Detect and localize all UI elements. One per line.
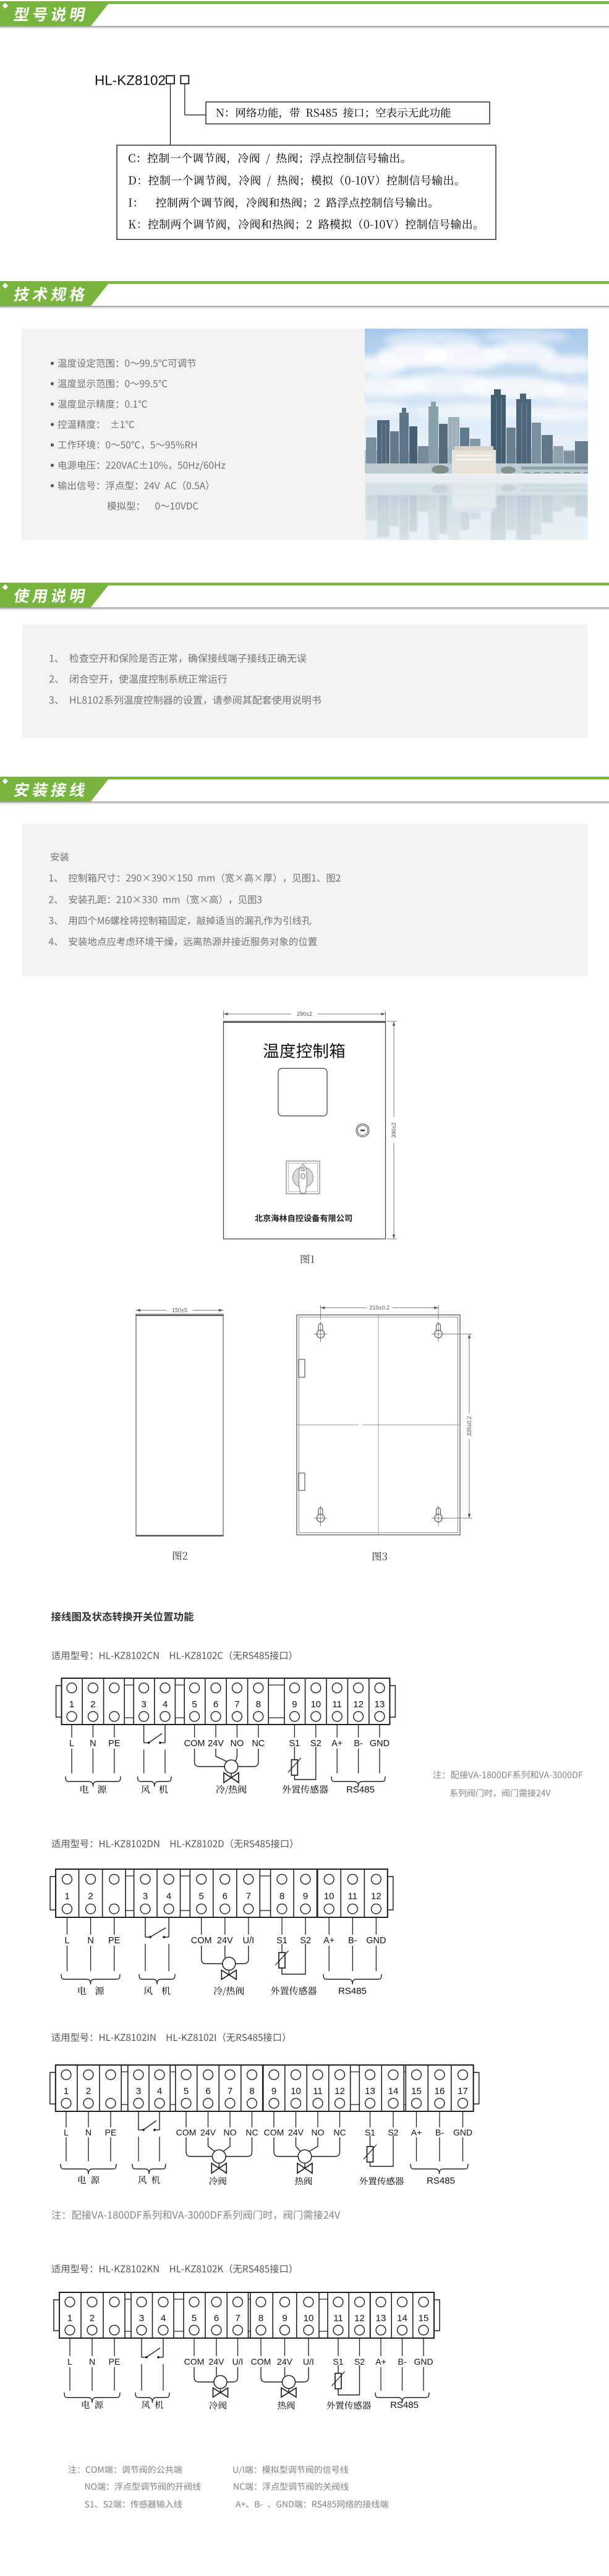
svg-text:150±5: 150±5 <box>172 1307 187 1314</box>
svg-text:13: 13 <box>365 2086 375 2097</box>
svg-text:1: 1 <box>67 2313 72 2323</box>
svg-text:9: 9 <box>271 2086 276 2097</box>
svg-text:A+: A+ <box>331 1739 343 1749</box>
svg-text:24V: 24V <box>288 2127 304 2137</box>
svg-text:9: 9 <box>303 1891 308 1902</box>
svg-text:5: 5 <box>199 1891 204 1902</box>
svg-text:HL-KZ8102: HL-KZ8102 <box>95 73 166 88</box>
svg-text:L: L <box>67 2357 72 2367</box>
svg-text:5: 5 <box>192 1699 197 1710</box>
svg-text:GND: GND <box>370 1739 390 1749</box>
svg-text:10: 10 <box>324 1891 334 1902</box>
svg-text:15: 15 <box>411 2086 422 2097</box>
svg-text:10: 10 <box>291 2086 301 2097</box>
svg-text:A+: A+ <box>375 2357 386 2367</box>
svg-text:A+: A+ <box>323 1936 334 1946</box>
svg-text:B-: B- <box>348 1936 357 1946</box>
svg-text:24V: 24V <box>217 1936 233 1946</box>
svg-text:3: 3 <box>139 2313 144 2323</box>
svg-text:A+: A+ <box>411 2127 422 2137</box>
svg-text:L: L <box>69 1739 74 1749</box>
svg-text:2: 2 <box>90 2313 95 2323</box>
svg-text:10: 10 <box>310 1699 321 1710</box>
svg-text:11: 11 <box>348 1891 358 1902</box>
svg-text:24V: 24V <box>277 2357 293 2367</box>
svg-text:4: 4 <box>157 2086 162 2097</box>
svg-text:N: N <box>89 2357 95 2367</box>
svg-text:12: 12 <box>334 2086 345 2097</box>
svg-text:7: 7 <box>228 2086 232 2097</box>
svg-text:24V: 24V <box>200 2127 216 2137</box>
svg-text:13: 13 <box>376 2313 386 2323</box>
svg-text:6: 6 <box>223 1891 228 1902</box>
svg-text:6: 6 <box>213 1699 218 1710</box>
svg-text:GND: GND <box>414 2357 433 2367</box>
svg-text:8: 8 <box>279 1891 284 1902</box>
svg-text:NO: NO <box>231 1739 244 1749</box>
svg-text:3: 3 <box>141 1699 146 1710</box>
svg-text:N: N <box>85 2127 92 2137</box>
svg-text:5: 5 <box>192 2313 197 2323</box>
svg-text:7: 7 <box>235 2313 240 2323</box>
svg-text:PE: PE <box>108 1739 121 1749</box>
svg-text:4: 4 <box>163 1699 168 1710</box>
svg-text:COM: COM <box>191 1936 212 1946</box>
svg-text:N: N <box>90 1739 96 1749</box>
svg-text:12: 12 <box>354 2313 365 2323</box>
svg-text:210±0.2: 210±0.2 <box>370 1305 390 1311</box>
svg-text:B-: B- <box>398 2357 407 2367</box>
svg-text:PE: PE <box>108 1936 121 1946</box>
svg-text:1: 1 <box>64 2086 69 2097</box>
svg-text:RS485: RS485 <box>390 2400 419 2410</box>
svg-text:NC: NC <box>333 2127 346 2137</box>
svg-text:L: L <box>64 1936 69 1946</box>
svg-text:NC: NC <box>245 2127 258 2137</box>
svg-text:8: 8 <box>249 2086 254 2097</box>
svg-text:2: 2 <box>88 1891 93 1902</box>
svg-text:12: 12 <box>371 1891 381 1902</box>
svg-text:13: 13 <box>375 1699 385 1710</box>
svg-text:290±2: 290±2 <box>297 1011 312 1017</box>
svg-text:2: 2 <box>90 1699 95 1710</box>
svg-text:B-: B- <box>435 2127 444 2137</box>
svg-text:GND: GND <box>453 2127 472 2137</box>
svg-text:24V: 24V <box>208 1739 224 1749</box>
svg-text:14: 14 <box>388 2086 399 2097</box>
svg-text:9: 9 <box>292 1699 297 1710</box>
svg-text:335±0.2: 335±0.2 <box>466 1416 472 1436</box>
svg-text:NO: NO <box>224 2127 237 2137</box>
svg-text:9: 9 <box>282 2313 287 2323</box>
svg-text:U/I: U/I <box>303 2357 314 2367</box>
svg-text:COM: COM <box>176 2127 197 2137</box>
svg-text:1: 1 <box>69 1699 74 1710</box>
svg-text:1: 1 <box>64 1891 69 1902</box>
svg-text:COM: COM <box>251 2357 271 2367</box>
svg-text:12: 12 <box>353 1699 364 1710</box>
svg-text:4: 4 <box>161 2313 166 2323</box>
svg-text:S1: S1 <box>333 2357 343 2367</box>
svg-text:6: 6 <box>205 2086 210 2097</box>
svg-text:L: L <box>64 2127 69 2137</box>
svg-text:PE: PE <box>105 2127 117 2137</box>
svg-text:11: 11 <box>333 2313 343 2323</box>
svg-text:PE: PE <box>109 2357 121 2367</box>
svg-text:11: 11 <box>332 1699 342 1710</box>
svg-text:6: 6 <box>214 2313 219 2323</box>
svg-text:2: 2 <box>86 2086 91 2097</box>
svg-text:RS485: RS485 <box>338 1986 367 1996</box>
svg-text:7: 7 <box>234 1699 239 1710</box>
svg-text:B-: B- <box>354 1739 363 1749</box>
svg-text:GND: GND <box>366 1936 386 1946</box>
svg-text:5: 5 <box>184 2086 189 2097</box>
svg-text:S2: S2 <box>354 2357 365 2367</box>
svg-text:3: 3 <box>143 1891 148 1902</box>
svg-text:NC: NC <box>252 1739 265 1749</box>
svg-text:COM: COM <box>184 1739 205 1749</box>
svg-text:RS485: RS485 <box>427 2176 455 2186</box>
svg-text:24V: 24V <box>209 2357 225 2367</box>
svg-text:U/I: U/I <box>232 2357 244 2367</box>
svg-text:4: 4 <box>166 1891 171 1902</box>
svg-text:8: 8 <box>256 1699 261 1710</box>
svg-text:15: 15 <box>419 2313 429 2323</box>
svg-text:7: 7 <box>246 1891 251 1902</box>
svg-text:COM: COM <box>264 2127 284 2137</box>
svg-text:NO: NO <box>312 2127 325 2137</box>
svg-text:N: N <box>87 1936 93 1946</box>
svg-text:3: 3 <box>136 2086 141 2097</box>
svg-text:17: 17 <box>458 2086 468 2097</box>
svg-text:10: 10 <box>304 2313 314 2323</box>
svg-text:14: 14 <box>397 2313 407 2323</box>
svg-text:390±2: 390±2 <box>391 1123 397 1138</box>
svg-text:U/I: U/I <box>243 1936 255 1946</box>
svg-text:16: 16 <box>435 2086 445 2097</box>
svg-text:RS485: RS485 <box>346 1784 375 1795</box>
svg-text:8: 8 <box>258 2313 263 2323</box>
svg-text:COM: COM <box>184 2357 205 2367</box>
svg-text:11: 11 <box>313 2086 323 2097</box>
